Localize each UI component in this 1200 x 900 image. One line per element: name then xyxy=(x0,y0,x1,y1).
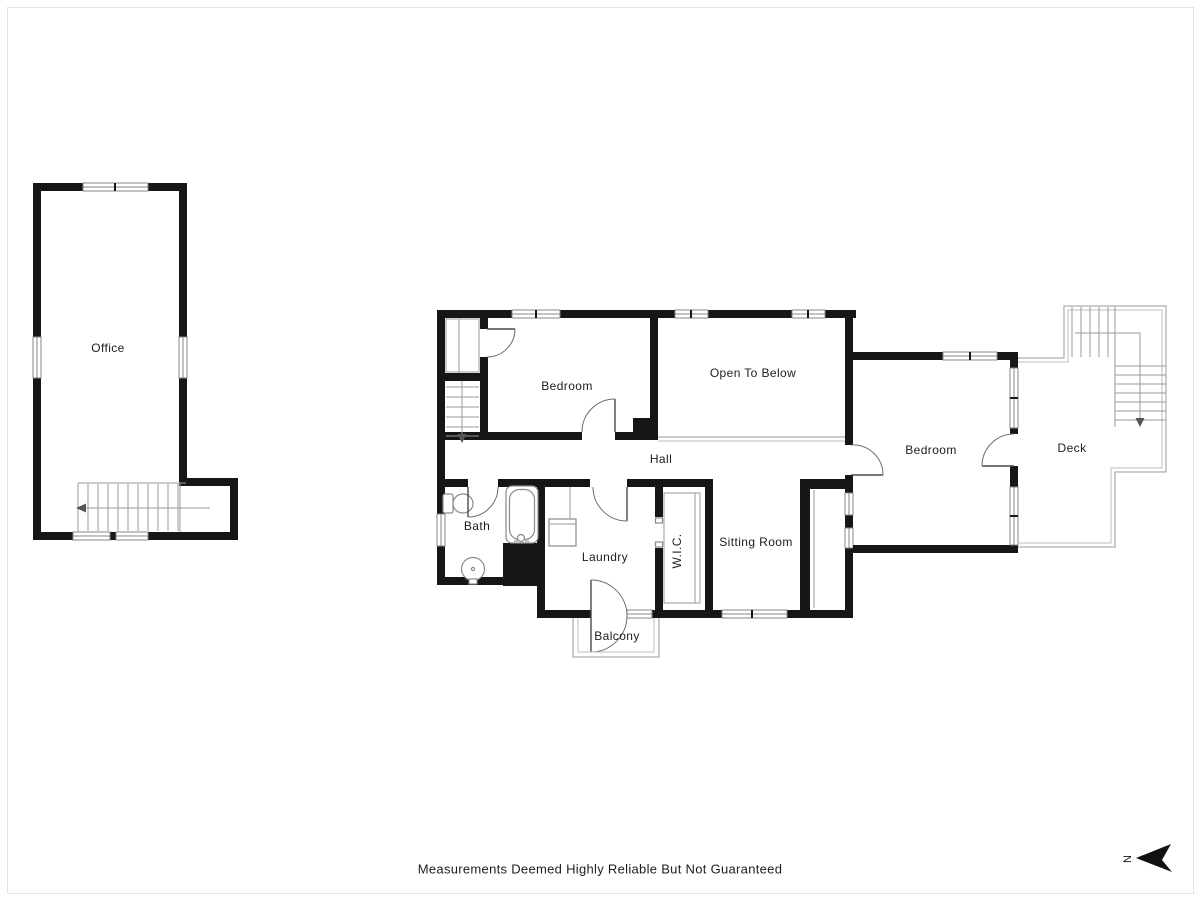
office-top-window xyxy=(83,183,148,191)
bedroom-right-top-window xyxy=(943,352,997,360)
room-label-wic: W.I.C. xyxy=(670,533,684,568)
office-staircase xyxy=(76,483,210,532)
right-wall-window-2 xyxy=(845,528,853,548)
office-left-window xyxy=(33,337,41,378)
deck-stairs-down-arrow xyxy=(1136,418,1145,427)
washer-icon xyxy=(549,519,576,546)
laundry-sidelight-window xyxy=(627,610,652,618)
room-label-bedroom-right: Bedroom xyxy=(905,443,957,457)
main-structure xyxy=(437,310,856,652)
open-to-below-edge xyxy=(658,437,845,441)
bedroom-left-closet xyxy=(446,319,479,372)
wic-door xyxy=(656,518,663,547)
floorplan-page: Office Bedroom Open To Below Hall Bath L… xyxy=(0,0,1200,900)
room-label-bedroom-left: Bedroom xyxy=(541,379,593,393)
right-wall-window-1 xyxy=(845,493,853,515)
bath-window xyxy=(437,514,445,546)
room-label-laundry: Laundry xyxy=(582,550,628,564)
floorplan-drawing xyxy=(0,0,1200,900)
office-bottom-window-2 xyxy=(116,532,148,540)
north-label: N xyxy=(1122,855,1134,863)
bedroom-left-closet-door xyxy=(487,329,515,357)
room-label-hall: Hall xyxy=(650,452,672,466)
office-bottom-window-1 xyxy=(73,532,110,540)
sitting-room-window xyxy=(722,610,787,618)
office-structure xyxy=(33,183,238,540)
bedroom-left-door xyxy=(582,399,615,432)
bedroom-right-window-1 xyxy=(1010,368,1018,428)
bedroom-right-hall-door xyxy=(851,445,883,475)
office-right-window xyxy=(179,337,187,378)
room-label-bath: Bath xyxy=(464,519,490,533)
deck-staircase xyxy=(1072,306,1166,427)
room-label-open-to-below: Open To Below xyxy=(710,366,796,380)
disclaimer-text: Measurements Deemed Highly Reliable But … xyxy=(418,862,783,877)
chimney-block xyxy=(633,418,658,440)
room-label-deck: Deck xyxy=(1058,441,1087,455)
room-label-sitting-room: Sitting Room xyxy=(719,535,793,549)
bedroom-right-deck-door xyxy=(982,434,1014,466)
room-label-balcony: Balcony xyxy=(594,629,640,643)
bedroom-left-top-window xyxy=(512,310,560,318)
room-label-office: Office xyxy=(91,341,125,355)
north-arrow-icon xyxy=(1136,844,1172,872)
deck-structure xyxy=(1018,306,1166,547)
bathtub-icon xyxy=(506,486,538,543)
open-to-below-window-1 xyxy=(675,310,708,318)
open-to-below-window-2 xyxy=(792,310,825,318)
bedroom-right-window-2 xyxy=(1010,487,1018,545)
laundry-door xyxy=(593,487,627,521)
